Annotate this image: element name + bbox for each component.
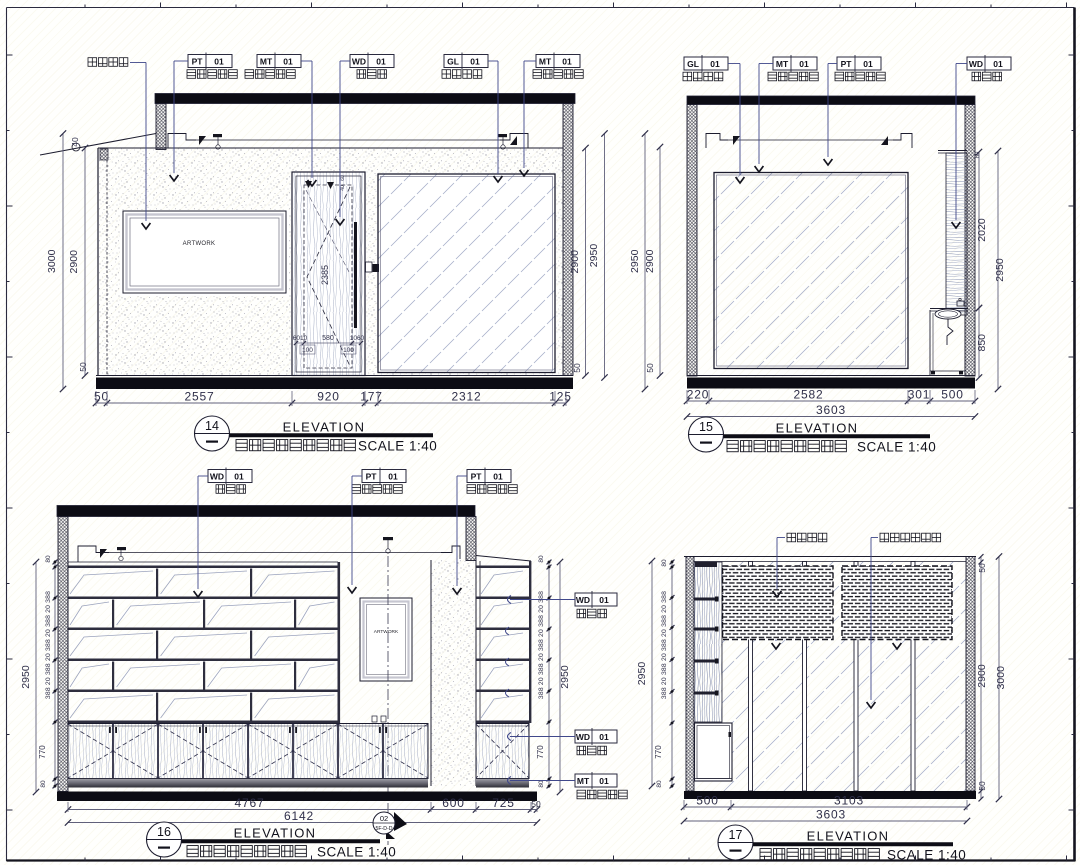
svg-text:6010: 6010 bbox=[293, 335, 308, 342]
svg-text:600: 600 bbox=[442, 796, 464, 810]
svg-text:301: 301 bbox=[908, 388, 930, 402]
svg-text:2900: 2900 bbox=[976, 664, 988, 688]
svg-text:40: 40 bbox=[70, 137, 80, 147]
svg-text:01: 01 bbox=[993, 59, 1003, 69]
svg-text:14: 14 bbox=[205, 419, 219, 433]
svg-text:80: 80 bbox=[538, 780, 545, 788]
svg-text:725: 725 bbox=[492, 796, 514, 810]
svg-text:15: 15 bbox=[699, 420, 713, 434]
svg-text:2950: 2950 bbox=[636, 662, 648, 686]
svg-text:770: 770 bbox=[38, 745, 47, 759]
svg-text:2950: 2950 bbox=[559, 665, 571, 689]
svg-text:2557: 2557 bbox=[185, 390, 215, 404]
svg-text:01: 01 bbox=[599, 595, 609, 605]
svg-text:177: 177 bbox=[360, 390, 382, 404]
svg-text:3000: 3000 bbox=[995, 666, 1007, 690]
svg-text:01: 01 bbox=[470, 57, 480, 67]
svg-text:WD: WD bbox=[969, 59, 983, 69]
svg-text:580: 580 bbox=[322, 335, 334, 342]
svg-text:SCALE 1:40: SCALE 1:40 bbox=[857, 440, 936, 455]
svg-text:PT: PT bbox=[471, 472, 483, 482]
svg-text:3603: 3603 bbox=[816, 808, 846, 822]
svg-text:3603: 3603 bbox=[816, 403, 846, 417]
svg-text:388 20 388 20 388 20 388 20 38: 388 20 388 20 388 20 388 20 388 bbox=[45, 591, 52, 699]
svg-text:GL: GL bbox=[447, 57, 459, 67]
svg-text:MT: MT bbox=[577, 776, 590, 786]
svg-text:MT: MT bbox=[776, 59, 789, 69]
svg-text:2950: 2950 bbox=[20, 665, 32, 689]
svg-text:2385: 2385 bbox=[320, 265, 330, 285]
svg-text:2020: 2020 bbox=[976, 218, 988, 242]
svg-text:388 20 388 20 388 20 388 20 38: 388 20 388 20 388 20 388 20 388 bbox=[538, 591, 545, 699]
svg-text:50: 50 bbox=[977, 563, 987, 573]
svg-text:MT: MT bbox=[539, 57, 552, 67]
svg-text:2582: 2582 bbox=[794, 388, 824, 402]
svg-text:16: 16 bbox=[157, 825, 171, 839]
svg-text:01: 01 bbox=[710, 59, 720, 69]
svg-text:50: 50 bbox=[531, 799, 541, 809]
svg-text:ELEVATION: ELEVATION bbox=[776, 421, 859, 436]
svg-text:01: 01 bbox=[214, 57, 224, 67]
svg-text:PT: PT bbox=[366, 472, 378, 482]
svg-text:01: 01 bbox=[388, 472, 398, 482]
svg-text:2900: 2900 bbox=[569, 250, 581, 274]
svg-text:01: 01 bbox=[493, 472, 503, 482]
svg-text:ARTWORK: ARTWORK bbox=[374, 629, 399, 635]
svg-text:50: 50 bbox=[977, 781, 987, 791]
svg-text:920: 920 bbox=[317, 390, 339, 404]
svg-text:5F-D-D: 5F-D-D bbox=[375, 826, 392, 832]
svg-text:WD: WD bbox=[576, 595, 590, 605]
svg-text:01: 01 bbox=[799, 59, 809, 69]
svg-text:2950: 2950 bbox=[994, 258, 1006, 282]
svg-text:01: 01 bbox=[376, 57, 386, 67]
svg-text:80: 80 bbox=[40, 780, 47, 788]
svg-text:SCALE 1:40: SCALE 1:40 bbox=[317, 845, 396, 860]
svg-text:01: 01 bbox=[283, 57, 293, 67]
svg-text:2950: 2950 bbox=[629, 249, 641, 273]
svg-text:01: 01 bbox=[863, 59, 873, 69]
svg-text:80: 80 bbox=[538, 555, 545, 563]
svg-text:770: 770 bbox=[654, 745, 663, 759]
svg-text:60: 60 bbox=[340, 175, 346, 181]
svg-text:PT: PT bbox=[192, 57, 204, 67]
svg-text:4767: 4767 bbox=[235, 796, 265, 810]
svg-text:6142: 6142 bbox=[284, 809, 314, 823]
svg-text:ELEVATION: ELEVATION bbox=[234, 826, 317, 841]
svg-text:500: 500 bbox=[941, 388, 963, 402]
svg-text:GL: GL bbox=[687, 59, 699, 69]
svg-text:388 20 388 20 388 20 388 20 38: 388 20 388 20 388 20 388 20 388 bbox=[661, 591, 668, 699]
svg-text:100: 100 bbox=[343, 347, 354, 354]
svg-text:SCALE 1:40: SCALE 1:40 bbox=[887, 848, 966, 863]
svg-text:850: 850 bbox=[976, 334, 988, 352]
svg-text:01: 01 bbox=[599, 776, 609, 786]
svg-text:500: 500 bbox=[696, 794, 718, 808]
svg-text:02: 02 bbox=[380, 814, 388, 823]
svg-text:ARTWORK: ARTWORK bbox=[183, 241, 216, 247]
svg-text:80: 80 bbox=[656, 780, 663, 788]
svg-text:ELEVATION: ELEVATION bbox=[807, 829, 890, 844]
svg-text:2900: 2900 bbox=[644, 249, 656, 273]
svg-text:WD: WD bbox=[576, 732, 590, 742]
svg-text:125: 125 bbox=[549, 390, 571, 404]
svg-text:01: 01 bbox=[234, 472, 244, 482]
svg-text:SCALE 1:40: SCALE 1:40 bbox=[358, 439, 437, 454]
svg-text:80: 80 bbox=[661, 559, 668, 567]
svg-text:220: 220 bbox=[687, 388, 709, 402]
svg-text:WD: WD bbox=[352, 57, 366, 67]
svg-text:17: 17 bbox=[729, 828, 743, 842]
svg-text:3000: 3000 bbox=[46, 249, 58, 273]
svg-text:3103: 3103 bbox=[834, 794, 864, 808]
svg-text:770: 770 bbox=[536, 745, 545, 759]
svg-text:1060: 1060 bbox=[350, 335, 365, 342]
svg-text:WD: WD bbox=[210, 472, 224, 482]
svg-text:2900: 2900 bbox=[68, 250, 80, 274]
svg-text:40: 40 bbox=[340, 185, 346, 191]
svg-text:80: 80 bbox=[45, 555, 52, 563]
svg-text:01: 01 bbox=[599, 732, 609, 742]
svg-text:PT: PT bbox=[841, 59, 853, 69]
svg-text:50: 50 bbox=[645, 363, 655, 373]
svg-text:MT: MT bbox=[260, 57, 273, 67]
svg-text:2312: 2312 bbox=[452, 390, 482, 404]
svg-text:ELEVATION: ELEVATION bbox=[283, 420, 366, 435]
svg-text:2950: 2950 bbox=[588, 244, 600, 268]
svg-text:50: 50 bbox=[572, 363, 582, 373]
svg-text:50: 50 bbox=[78, 362, 88, 372]
svg-text:01: 01 bbox=[562, 57, 572, 67]
svg-text:100: 100 bbox=[302, 347, 313, 354]
